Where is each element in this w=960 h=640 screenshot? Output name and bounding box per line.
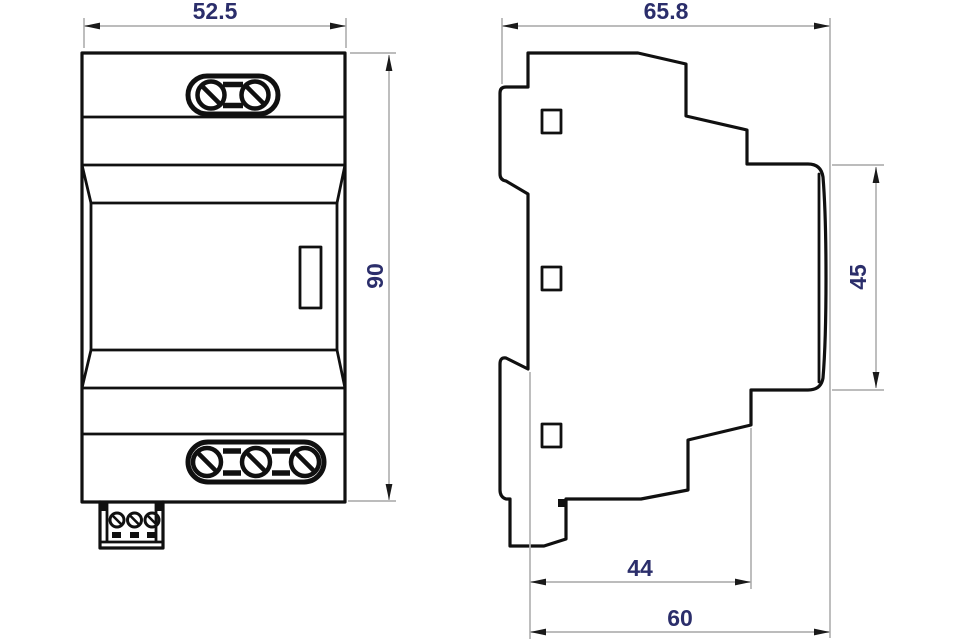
arrow-up-icon xyxy=(873,167,880,183)
bottom-screw-slot xyxy=(297,454,313,470)
top-screw-left-slot xyxy=(203,87,219,103)
connector-pad xyxy=(130,532,139,538)
front-body-bands xyxy=(82,117,345,434)
connector-notch-left xyxy=(100,502,108,511)
arrow-down-icon xyxy=(386,484,393,500)
dim-side-total-depth: 60 xyxy=(530,605,830,635)
dim-side-total-depth-label: 60 xyxy=(667,605,693,631)
arrow-right-icon xyxy=(814,629,830,636)
dim-side-face-label: 45 xyxy=(845,264,871,290)
side-body-outline xyxy=(500,53,826,546)
bottom-terminal-block xyxy=(188,442,324,482)
front-face-chamfers xyxy=(82,165,345,388)
side-foot-notch xyxy=(558,499,566,507)
top-terminal-block xyxy=(188,76,278,114)
dim-front-width-label: 52.5 xyxy=(193,0,238,24)
dim-front-width: 52.5 xyxy=(84,0,346,48)
bottom-screw-slot xyxy=(199,454,215,470)
arrow-right-icon xyxy=(814,23,830,30)
top-terminal-outline xyxy=(188,76,278,114)
bottom-connector xyxy=(100,502,163,548)
arrow-down-icon xyxy=(873,372,880,388)
side-view: 65.8 45 44 60 xyxy=(500,0,884,639)
dim-side-overall-label: 65.8 xyxy=(644,0,689,24)
arrow-left-icon xyxy=(502,23,518,30)
connector-notch-right xyxy=(155,502,163,511)
dim-front-height: 90 xyxy=(348,53,396,501)
side-terminal-window-top xyxy=(542,110,561,133)
bottom-screw-slot xyxy=(248,454,264,470)
connector-screw-slot xyxy=(130,516,139,525)
top-screw-right-slot xyxy=(247,87,263,103)
technical-drawing: 52.5 90 65.8 xyxy=(0,0,960,640)
arrow-left-icon xyxy=(84,23,100,30)
front-label-slot xyxy=(300,247,321,308)
dim-side-body-depth-label: 44 xyxy=(627,555,653,581)
connector-pad xyxy=(112,532,121,538)
dim-side-face: 45 xyxy=(832,165,884,390)
connector-pad xyxy=(147,532,156,538)
arrow-left-icon xyxy=(530,629,546,636)
side-terminal-window-middle xyxy=(542,267,561,290)
connector-screw-slot xyxy=(113,516,122,525)
arrow-left-icon xyxy=(530,579,546,586)
arrow-right-icon xyxy=(330,23,346,30)
arrow-up-icon xyxy=(386,55,393,71)
front-view: 52.5 90 xyxy=(82,0,396,548)
drawing-canvas: 52.5 90 65.8 xyxy=(0,0,960,640)
dim-front-height-label: 90 xyxy=(362,263,388,289)
arrow-right-icon xyxy=(735,579,751,586)
side-terminal-window-bottom xyxy=(542,424,561,447)
